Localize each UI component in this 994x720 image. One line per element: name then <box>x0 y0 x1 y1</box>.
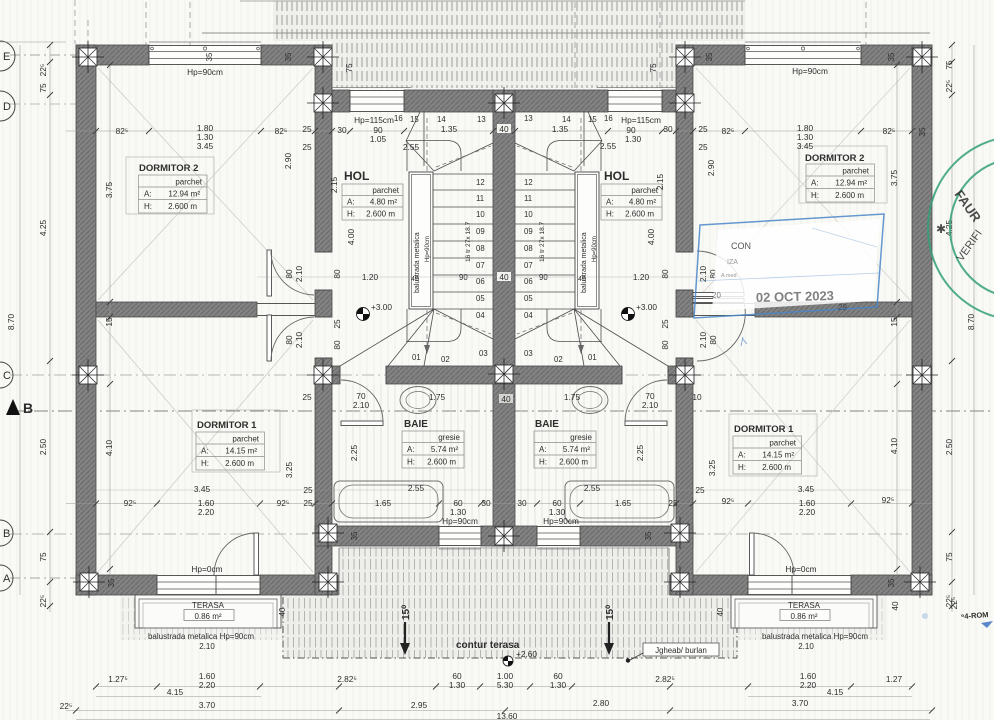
svg-text:40: 40 <box>499 272 509 282</box>
svg-text:25: 25 <box>695 485 705 495</box>
svg-text:balustrada metalica: balustrada metalica <box>414 232 421 293</box>
svg-text:2.55: 2.55 <box>403 142 420 152</box>
svg-text:13: 13 <box>477 115 486 124</box>
svg-text:2.600 m: 2.600 m <box>427 458 456 467</box>
svg-text:25: 25 <box>668 498 678 508</box>
svg-text:09: 09 <box>476 227 485 236</box>
svg-text:2.10: 2.10 <box>698 266 708 283</box>
svg-text:TERASA: TERASA <box>192 601 225 610</box>
svg-text:2.600 m: 2.600 m <box>225 459 254 468</box>
svg-text:Hp=0cm: Hp=0cm <box>191 564 222 574</box>
svg-text:2.20: 2.20 <box>198 507 215 517</box>
svg-text:75: 75 <box>648 63 658 73</box>
svg-text:2.82⁵: 2.82⁵ <box>337 674 357 684</box>
svg-text:13.60: 13.60 <box>497 711 518 720</box>
svg-text:35: 35 <box>644 531 653 540</box>
svg-text:HOL: HOL <box>604 169 629 183</box>
svg-text:06: 06 <box>476 277 485 286</box>
svg-text:14.15 m²: 14.15 m² <box>762 451 794 460</box>
svg-text:Jgheab/ burlan: Jgheab/ burlan <box>655 646 707 655</box>
svg-text:1.65: 1.65 <box>615 498 632 508</box>
svg-text:12: 12 <box>476 178 485 187</box>
svg-text:05: 05 <box>524 294 533 303</box>
svg-text:H:: H: <box>539 458 547 467</box>
svg-text:DORMITOR 2: DORMITOR 2 <box>805 153 864 164</box>
svg-text:Hp=90cm: Hp=90cm <box>592 236 598 262</box>
svg-text:H:: H: <box>201 459 209 468</box>
svg-text:2.600 m: 2.600 m <box>366 210 395 219</box>
svg-text:0.86 m²: 0.86 m² <box>790 612 817 621</box>
svg-text:2.50: 2.50 <box>944 439 954 456</box>
svg-text:3.70: 3.70 <box>199 700 216 710</box>
svg-text:+3.00: +3.00 <box>371 302 392 312</box>
svg-text:5.30: 5.30 <box>497 680 514 690</box>
svg-text:TERASA: TERASA <box>788 601 821 610</box>
svg-text:25: 25 <box>302 142 312 152</box>
svg-text:3.25: 3.25 <box>707 460 717 477</box>
svg-text:0.86 m²: 0.86 m² <box>194 612 221 621</box>
svg-text:10: 10 <box>524 210 533 219</box>
svg-text:5.74 m²: 5.74 m² <box>563 445 590 454</box>
svg-text:2.80: 2.80 <box>593 698 610 708</box>
svg-text:+3.00: +3.00 <box>636 302 657 312</box>
svg-text:15⁰: 15⁰ <box>605 605 616 620</box>
svg-text:4.15: 4.15 <box>827 687 844 697</box>
svg-text:balustrada metalica Hp=90cm: balustrada metalica Hp=90cm <box>762 632 868 641</box>
svg-text:3.25: 3.25 <box>284 462 294 479</box>
svg-text:2.10: 2.10 <box>353 400 370 410</box>
svg-text:09: 09 <box>524 227 533 236</box>
svg-text:01: 01 <box>412 353 421 362</box>
svg-text:80: 80 <box>660 340 670 350</box>
svg-text:✱: ✱ <box>936 222 946 236</box>
svg-text:29: 29 <box>838 303 847 312</box>
svg-text:A:: A: <box>144 190 152 199</box>
svg-text:30: 30 <box>663 124 673 134</box>
svg-text:35: 35 <box>107 578 116 587</box>
svg-text:22⁵: 22⁵ <box>949 597 959 610</box>
svg-text:10: 10 <box>692 392 702 402</box>
svg-text:15: 15 <box>588 115 597 124</box>
svg-text:Hp=90cm: Hp=90cm <box>442 516 478 526</box>
svg-text:14: 14 <box>437 115 446 124</box>
svg-text:2.90: 2.90 <box>283 153 293 170</box>
svg-text:03: 03 <box>524 349 533 358</box>
svg-text:75: 75 <box>344 63 354 73</box>
svg-text:2.50: 2.50 <box>38 439 48 456</box>
svg-text:22⁵: 22⁵ <box>60 701 73 711</box>
svg-text:DORMITOR 1: DORMITOR 1 <box>734 424 794 435</box>
svg-text:30: 30 <box>517 498 527 508</box>
svg-text:01: 01 <box>588 353 597 362</box>
svg-text:16: 16 <box>394 114 403 123</box>
svg-text:+2.60: +2.60 <box>516 649 537 659</box>
svg-text:80: 80 <box>332 340 342 350</box>
svg-text:92⁵: 92⁵ <box>277 498 290 508</box>
svg-text:06: 06 <box>524 277 533 286</box>
svg-text:2.25: 2.25 <box>349 445 359 462</box>
svg-text:07: 07 <box>524 261 533 270</box>
svg-text:4.25: 4.25 <box>38 220 48 237</box>
svg-text:22⁵: 22⁵ <box>38 64 48 77</box>
svg-text:1.65: 1.65 <box>375 498 392 508</box>
svg-text:A:: A: <box>539 445 547 454</box>
svg-text:3.45: 3.45 <box>797 141 814 151</box>
svg-text:2.20: 2.20 <box>199 680 216 690</box>
svg-text:2.55: 2.55 <box>408 483 425 493</box>
svg-text:75: 75 <box>38 83 48 93</box>
svg-text:2.10: 2.10 <box>798 642 814 651</box>
svg-text:3.70: 3.70 <box>792 698 809 708</box>
svg-text:20: 20 <box>712 291 721 300</box>
svg-text:H:: H: <box>407 458 415 467</box>
svg-text:3.45: 3.45 <box>194 484 211 494</box>
svg-text:2.95: 2.95 <box>411 700 428 710</box>
svg-text:parchet: parchet <box>769 439 796 448</box>
svg-text:CON: CON <box>731 241 751 251</box>
svg-text:D: D <box>3 101 11 113</box>
svg-text:Hp=90cm: Hp=90cm <box>187 67 223 77</box>
svg-text:1.20: 1.20 <box>633 272 650 282</box>
svg-text:Hp=90cm: Hp=90cm <box>792 66 828 76</box>
svg-text:A med: A med <box>721 273 737 279</box>
svg-text:80: 80 <box>284 269 294 279</box>
svg-text:92⁵: 92⁵ <box>882 495 895 505</box>
svg-text:1.30: 1.30 <box>625 134 642 144</box>
svg-text:H:: H: <box>606 210 614 219</box>
svg-text:22⁵: 22⁵ <box>38 595 48 608</box>
svg-text:2.600 m: 2.600 m <box>625 210 654 219</box>
svg-text:2.600 m: 2.600 m <box>168 202 197 211</box>
svg-text:1.30: 1.30 <box>550 680 567 690</box>
svg-text:2.20: 2.20 <box>799 507 816 517</box>
svg-text:1.27⁵: 1.27⁵ <box>108 674 128 684</box>
svg-text:25: 25 <box>698 124 708 134</box>
svg-text:4.80 m²: 4.80 m² <box>370 198 397 207</box>
svg-text:4.00: 4.00 <box>346 229 356 246</box>
svg-text:16 tr 27x 18.7: 16 tr 27x 18.7 <box>539 221 546 262</box>
svg-text:1.30: 1.30 <box>449 680 466 690</box>
svg-text:1.35: 1.35 <box>441 124 458 134</box>
svg-text:90: 90 <box>539 273 548 282</box>
svg-text:2.10: 2.10 <box>199 642 215 651</box>
svg-text:2.25: 2.25 <box>635 445 645 462</box>
svg-text:82⁵: 82⁵ <box>722 126 735 136</box>
svg-text:16: 16 <box>604 114 613 123</box>
svg-text:80: 80 <box>660 269 670 279</box>
svg-text:40: 40 <box>716 607 725 616</box>
svg-text:A:: A: <box>738 451 746 460</box>
svg-text:H:: H: <box>144 202 152 211</box>
svg-text:2.20: 2.20 <box>800 680 817 690</box>
svg-text:16 tr 27x 18.7: 16 tr 27x 18.7 <box>465 221 472 262</box>
svg-text:04: 04 <box>476 311 485 320</box>
svg-text:30: 30 <box>481 498 491 508</box>
svg-text:Hp=90cm: Hp=90cm <box>425 236 431 262</box>
svg-text:4.80 m²: 4.80 m² <box>629 198 656 207</box>
svg-text:Hp=0cm: Hp=0cm <box>785 564 816 574</box>
svg-text:82⁵: 82⁵ <box>116 126 129 136</box>
svg-text:80: 80 <box>284 335 294 345</box>
svg-text:8.70: 8.70 <box>6 314 16 331</box>
svg-text:2.55: 2.55 <box>600 141 617 151</box>
svg-text:12.94 m²: 12.94 m² <box>835 179 867 188</box>
svg-text:12: 12 <box>524 178 533 187</box>
svg-text:parchet: parchet <box>232 435 259 444</box>
svg-text:2.600 m: 2.600 m <box>559 458 588 467</box>
svg-text:25: 25 <box>303 485 313 495</box>
svg-text:35: 35 <box>917 127 927 137</box>
svg-text:92⁵: 92⁵ <box>722 496 735 506</box>
svg-text:2.600 m: 2.600 m <box>835 191 864 200</box>
svg-text:parchet: parchet <box>175 178 202 187</box>
svg-text:25: 25 <box>303 498 313 508</box>
svg-text:82⁵: 82⁵ <box>883 126 896 136</box>
svg-text:Hp=115cm: Hp=115cm <box>354 115 394 125</box>
svg-text:IZA: IZA <box>727 259 738 266</box>
svg-text:75: 75 <box>944 60 954 70</box>
svg-text:parchet: parchet <box>372 186 399 195</box>
svg-text:80: 80 <box>708 335 718 345</box>
svg-text:10: 10 <box>476 210 485 219</box>
svg-text:02 OCT 2023: 02 OCT 2023 <box>756 288 834 305</box>
svg-text:DORMITOR 2: DORMITOR 2 <box>139 163 198 174</box>
svg-text:BAIE: BAIE <box>404 419 428 430</box>
svg-text:80: 80 <box>332 269 342 279</box>
svg-text:3.75: 3.75 <box>889 170 899 187</box>
svg-text:A:: A: <box>811 179 819 188</box>
svg-text:A:: A: <box>201 447 209 456</box>
svg-text:HOL: HOL <box>344 169 369 183</box>
svg-text:4.00: 4.00 <box>646 229 656 246</box>
svg-text:DORMITOR 1: DORMITOR 1 <box>197 420 257 431</box>
svg-text:40: 40 <box>501 394 511 404</box>
svg-text:4.10: 4.10 <box>889 438 899 455</box>
svg-text:12.94 m²: 12.94 m² <box>168 190 200 199</box>
svg-text:2.82⁵: 2.82⁵ <box>655 674 675 684</box>
svg-text:15⁰: 15⁰ <box>401 605 412 620</box>
svg-text:75: 75 <box>944 552 954 562</box>
svg-text:35: 35 <box>284 52 293 61</box>
svg-text:3.75: 3.75 <box>104 182 114 199</box>
svg-text:1.35: 1.35 <box>552 124 569 134</box>
svg-text:C: C <box>3 370 11 382</box>
svg-text:30: 30 <box>337 125 347 135</box>
svg-text:B: B <box>3 528 10 540</box>
svg-text:15: 15 <box>889 317 899 327</box>
svg-text:75: 75 <box>38 552 48 562</box>
svg-text:Hp=115cm: Hp=115cm <box>621 115 661 125</box>
svg-text:40: 40 <box>890 601 900 611</box>
svg-text:gresie: gresie <box>570 433 592 442</box>
svg-text:02: 02 <box>554 355 563 364</box>
svg-text:3.45: 3.45 <box>798 484 815 494</box>
svg-text:BAIE: BAIE <box>535 419 559 430</box>
svg-text:A: A <box>3 573 11 585</box>
svg-text:14.15 m²: 14.15 m² <box>225 447 257 456</box>
svg-text:5.74 m²: 5.74 m² <box>431 445 458 454</box>
svg-text:25: 25 <box>302 124 312 134</box>
svg-text:15: 15 <box>410 115 419 124</box>
svg-text:2.55: 2.55 <box>584 483 601 493</box>
svg-text:parchet: parchet <box>842 167 869 176</box>
svg-text:4.15: 4.15 <box>167 687 184 697</box>
svg-text:25: 25 <box>332 319 342 329</box>
svg-text:1.27: 1.27 <box>886 674 903 684</box>
svg-text:92⁵: 92⁵ <box>124 498 137 508</box>
svg-text:35: 35 <box>887 52 896 61</box>
svg-text:balustrada metalica: balustrada metalica <box>581 232 588 293</box>
svg-text:82⁵: 82⁵ <box>275 126 288 136</box>
svg-text:35: 35 <box>350 531 359 540</box>
svg-text:Hp=90cm: Hp=90cm <box>543 516 579 526</box>
svg-text:2.10: 2.10 <box>698 332 708 349</box>
svg-text:22⁵: 22⁵ <box>944 80 954 93</box>
svg-text:08: 08 <box>476 244 485 253</box>
svg-text:15: 15 <box>104 317 114 327</box>
svg-text:25: 25 <box>660 319 670 329</box>
svg-text:B: B <box>23 400 33 416</box>
svg-text:02: 02 <box>441 355 450 364</box>
svg-text:35: 35 <box>705 52 714 61</box>
svg-text:14: 14 <box>562 115 571 124</box>
svg-text:2.10: 2.10 <box>294 266 304 283</box>
svg-text:90: 90 <box>459 273 468 282</box>
svg-text:07: 07 <box>476 261 485 270</box>
svg-text:2.15: 2.15 <box>655 174 665 191</box>
svg-text:25: 25 <box>302 392 312 402</box>
svg-text:4.10: 4.10 <box>104 440 114 457</box>
svg-text:A:: A: <box>407 445 415 454</box>
svg-text:E: E <box>3 51 10 63</box>
svg-text:contur terasa: contur terasa <box>456 640 520 651</box>
svg-text:40: 40 <box>499 124 509 134</box>
svg-text:8.70: 8.70 <box>966 314 976 331</box>
svg-text:2.600 m: 2.600 m <box>762 463 791 472</box>
svg-text:2.90: 2.90 <box>706 160 716 177</box>
svg-text:3.45: 3.45 <box>197 141 214 151</box>
svg-text:08: 08 <box>524 244 533 253</box>
svg-text:H:: H: <box>738 463 746 472</box>
svg-text:1.05: 1.05 <box>370 134 387 144</box>
svg-text:35: 35 <box>887 578 896 587</box>
svg-text:A:: A: <box>606 198 614 207</box>
svg-text:2.15: 2.15 <box>329 177 339 194</box>
svg-text:1.75: 1.75 <box>429 392 446 402</box>
svg-text:A:: A: <box>347 198 355 207</box>
svg-text:35: 35 <box>205 52 214 61</box>
svg-text:gresie: gresie <box>438 433 460 442</box>
svg-text:balustrada metalica Hp=90cm: balustrada metalica Hp=90cm <box>148 632 254 641</box>
svg-text:04: 04 <box>524 311 533 320</box>
svg-text:03: 03 <box>479 349 488 358</box>
svg-text:1.20: 1.20 <box>362 272 379 282</box>
svg-text:2.10: 2.10 <box>642 400 659 410</box>
svg-text:11: 11 <box>476 194 484 203</box>
svg-text:40: 40 <box>278 607 287 616</box>
svg-text:H:: H: <box>811 191 819 200</box>
svg-text:H:: H: <box>347 210 355 219</box>
svg-text:1.75: 1.75 <box>564 392 581 402</box>
svg-text:05: 05 <box>476 294 485 303</box>
svg-text:11: 11 <box>524 194 532 203</box>
svg-text:13: 13 <box>524 114 533 123</box>
svg-text:25: 25 <box>698 142 708 152</box>
svg-text:2.10: 2.10 <box>294 332 304 349</box>
